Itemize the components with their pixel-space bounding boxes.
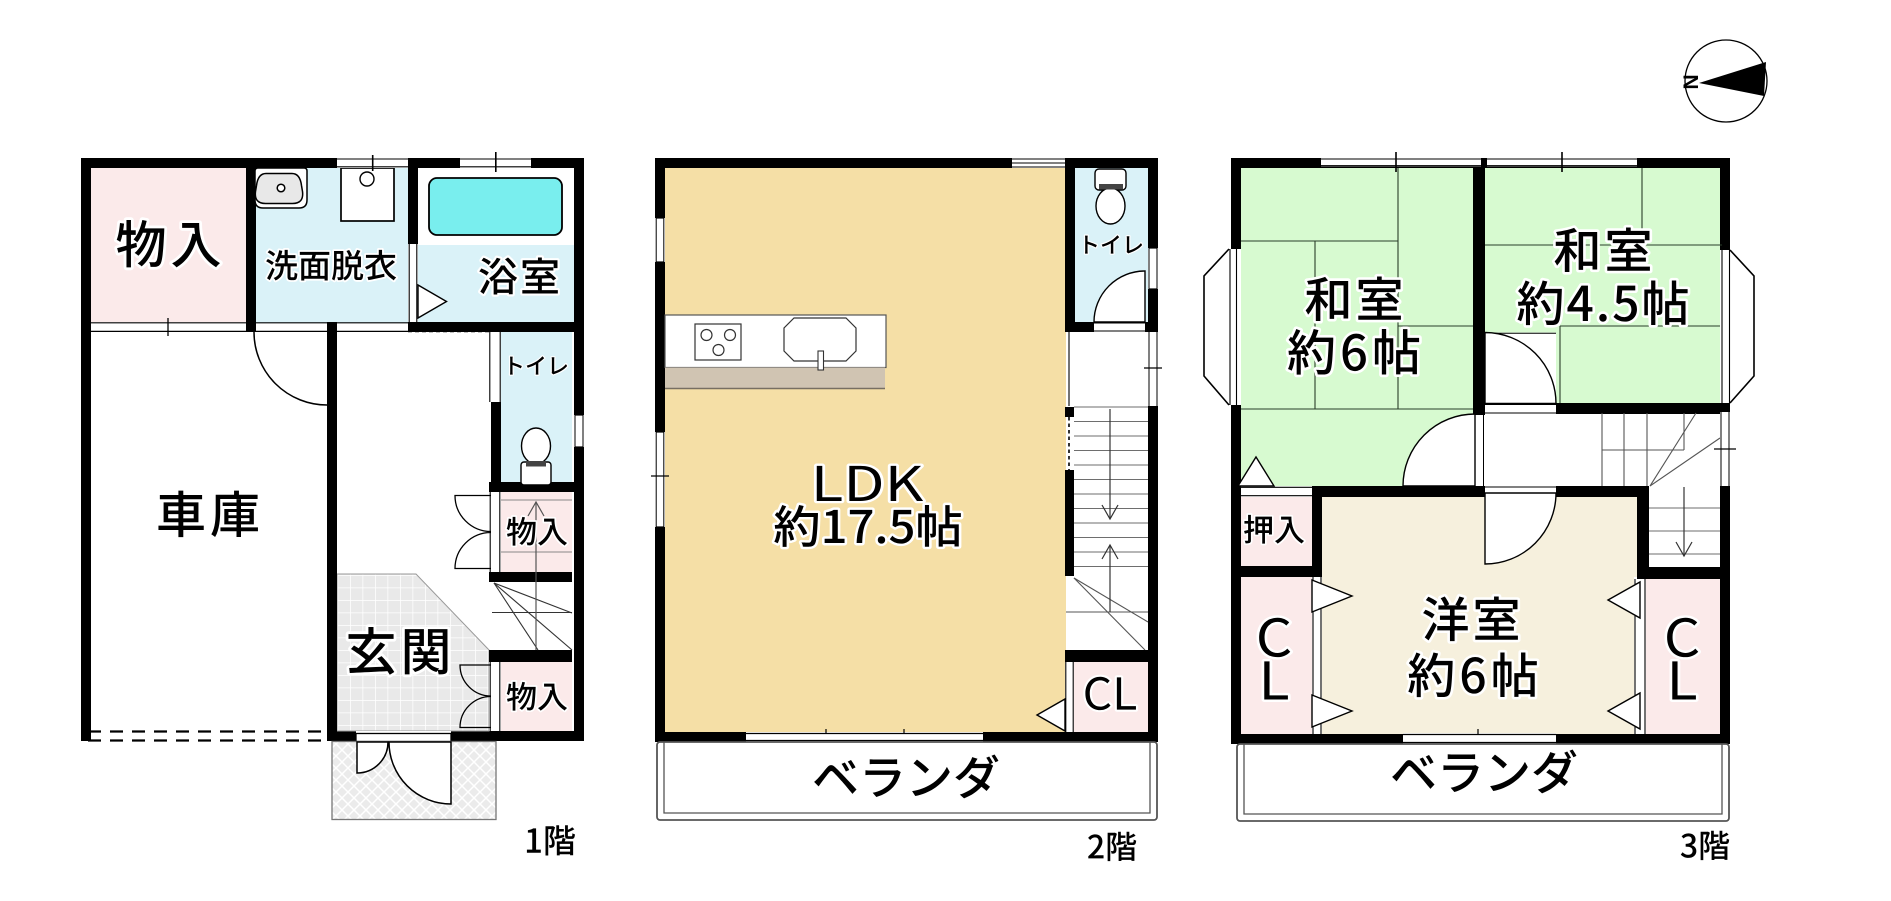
svg-text:N: N bbox=[1679, 74, 1702, 89]
